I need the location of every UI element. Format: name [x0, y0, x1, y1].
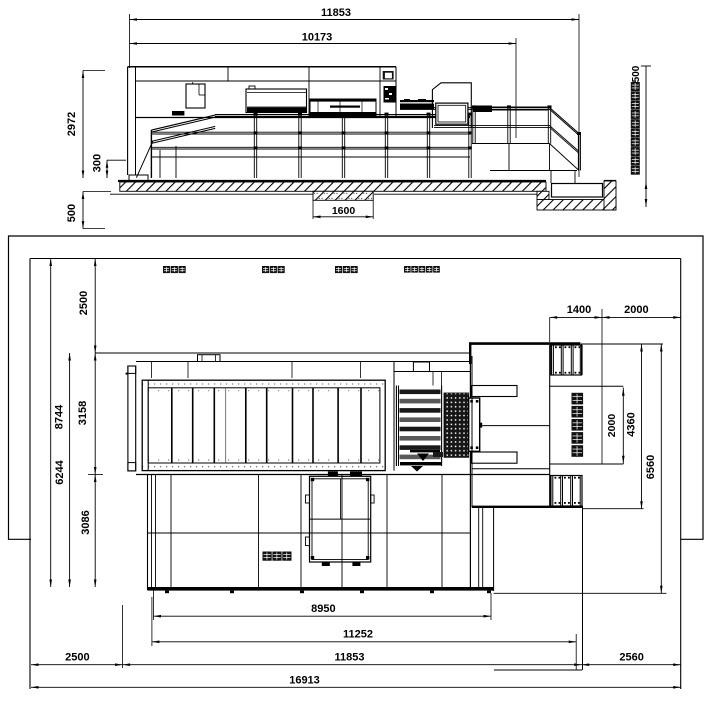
svg-text:1600: 1600 [332, 205, 356, 217]
svg-text:500: 500 [631, 65, 642, 82]
svg-text:16913: 16913 [289, 675, 320, 687]
svg-text:1400: 1400 [567, 304, 591, 316]
svg-text:2000: 2000 [624, 304, 648, 316]
svg-text:2560: 2560 [619, 652, 643, 664]
svg-text:3086: 3086 [80, 510, 92, 534]
svg-text:11252: 11252 [343, 629, 373, 641]
svg-text:4360: 4360 [626, 412, 638, 436]
svg-text:11853: 11853 [321, 7, 351, 19]
svg-text:2000: 2000 [606, 414, 618, 438]
svg-text:6560: 6560 [645, 455, 657, 479]
svg-text:2972: 2972 [66, 112, 78, 136]
svg-text:6244: 6244 [54, 459, 66, 484]
svg-text:2500: 2500 [65, 652, 89, 664]
svg-text:2500: 2500 [78, 291, 90, 315]
svg-text:500: 500 [66, 204, 78, 222]
svg-text:300: 300 [92, 154, 104, 172]
svg-text:3158: 3158 [77, 401, 89, 425]
svg-text:8950: 8950 [311, 603, 335, 615]
svg-text:8744: 8744 [54, 404, 66, 429]
svg-text:10173: 10173 [302, 32, 333, 44]
svg-text:11853: 11853 [335, 652, 365, 664]
